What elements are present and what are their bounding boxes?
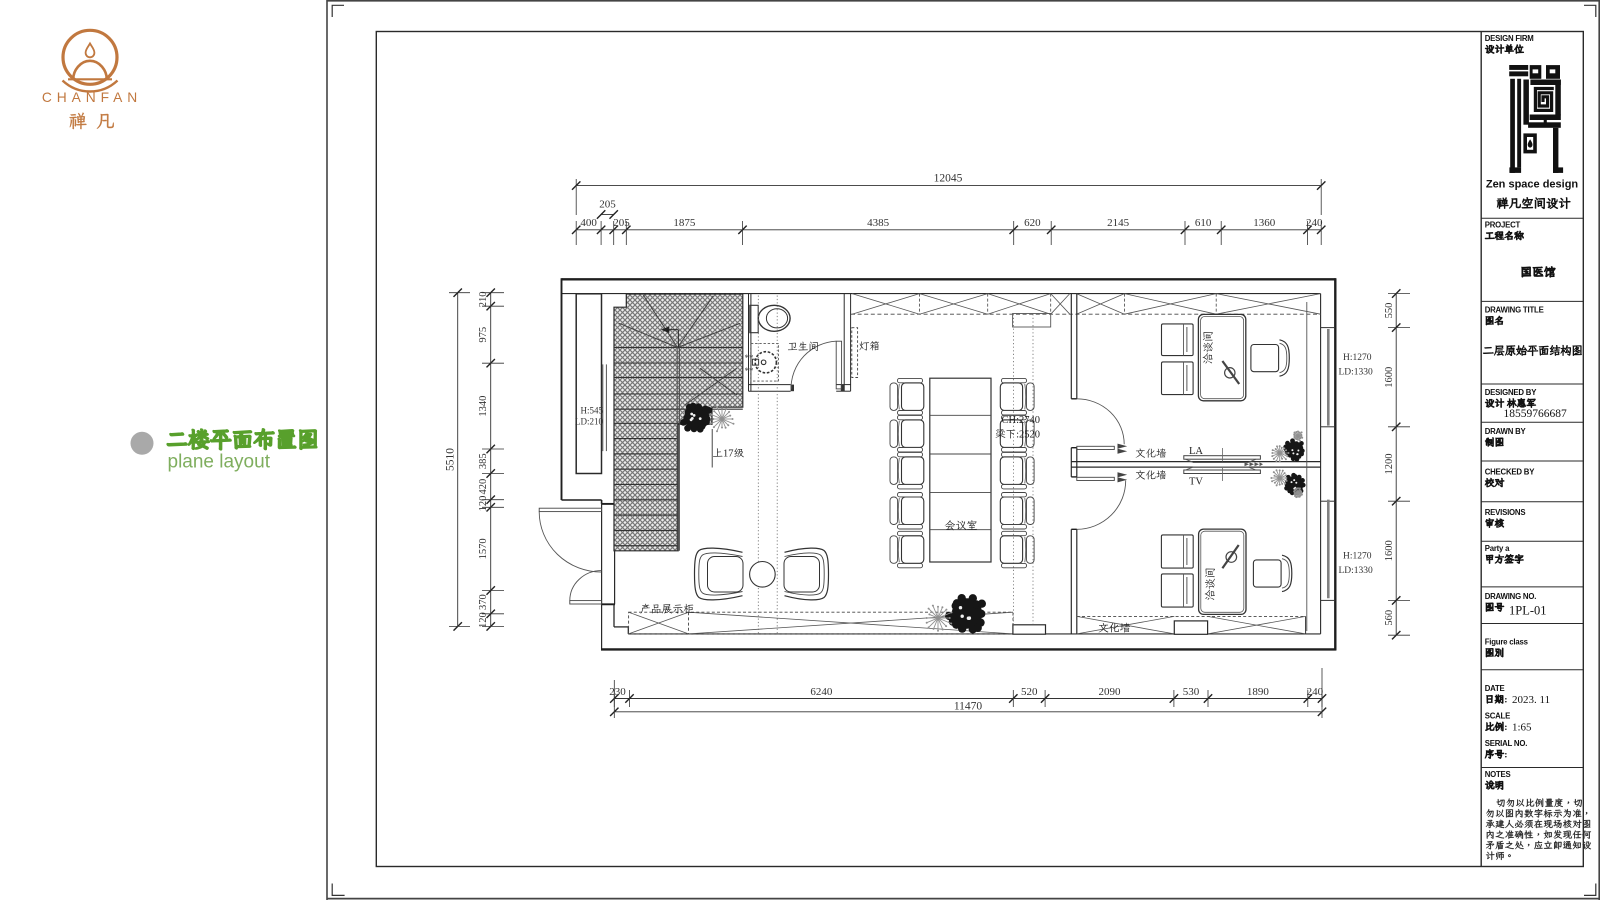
svg-text:1PL-01: 1PL-01	[1509, 604, 1547, 618]
svg-text:**: **	[745, 366, 755, 376]
svg-text:975: 975	[478, 327, 489, 343]
svg-text:120: 120	[478, 612, 489, 628]
svg-text:DRAWING NO.: DRAWING NO.	[1485, 592, 1537, 601]
svg-text:1600: 1600	[1384, 540, 1395, 561]
svg-text:520: 520	[1021, 686, 1038, 698]
svg-text:CHANFAN: CHANFAN	[42, 90, 142, 105]
svg-text:H:1270: H:1270	[1343, 552, 1372, 562]
svg-text:400: 400	[580, 217, 597, 229]
svg-text:1890: 1890	[1247, 686, 1270, 698]
svg-text:205: 205	[599, 199, 616, 211]
svg-text:LD:210: LD:210	[575, 417, 603, 427]
svg-text:240: 240	[1307, 686, 1324, 698]
svg-text:DESIGNED BY: DESIGNED BY	[1485, 388, 1538, 397]
svg-text:SCALE: SCALE	[1485, 712, 1510, 721]
svg-text:CH:2740: CH:2740	[1002, 415, 1041, 426]
svg-text:LA: LA	[1189, 446, 1203, 457]
svg-text:610: 610	[1195, 217, 1212, 229]
svg-text:TV: TV	[1189, 477, 1203, 488]
svg-text:2090: 2090	[1099, 686, 1122, 698]
svg-text::: :	[1504, 722, 1507, 733]
svg-text:550: 550	[1384, 303, 1395, 319]
svg-text:11470: 11470	[954, 701, 983, 713]
svg-text:530: 530	[1183, 686, 1200, 698]
svg-text:18559766687: 18559766687	[1504, 408, 1568, 420]
svg-text:H:1270: H:1270	[1343, 353, 1372, 363]
svg-text:620: 620	[1024, 217, 1041, 229]
svg-text:DRAWING TITLE: DRAWING TITLE	[1485, 306, 1544, 315]
svg-text:CHECKED BY: CHECKED BY	[1485, 468, 1536, 477]
svg-text:LD:1330: LD:1330	[1339, 566, 1374, 576]
svg-text:**: **	[745, 353, 755, 363]
svg-text:DATE: DATE	[1485, 684, 1505, 693]
svg-text:PROJECT: PROJECT	[1485, 221, 1521, 230]
svg-text:Party a: Party a	[1485, 544, 1510, 553]
svg-text:Figure class: Figure class	[1485, 638, 1529, 647]
svg-text:1570: 1570	[478, 538, 489, 559]
svg-text:DESIGN FIRM: DESIGN FIRM	[1485, 34, 1534, 43]
svg-text:5510: 5510	[445, 448, 457, 471]
svg-text:17: 17	[723, 449, 734, 460]
svg-text:1360: 1360	[1253, 217, 1276, 229]
svg-text::: :	[1504, 750, 1507, 761]
svg-text:LD:1330: LD:1330	[1339, 368, 1374, 378]
svg-text:1200: 1200	[1384, 454, 1395, 475]
svg-text:370: 370	[478, 594, 489, 610]
svg-text:420: 420	[478, 479, 489, 495]
svg-text::: :	[1504, 695, 1507, 706]
svg-text:230: 230	[609, 686, 626, 698]
svg-text:560: 560	[1384, 610, 1395, 626]
svg-text:1:65: 1:65	[1512, 722, 1532, 734]
svg-text:plane layout: plane layout	[168, 452, 271, 473]
svg-text:12045: 12045	[934, 173, 963, 185]
svg-text::2520: :2520	[1016, 430, 1040, 441]
svg-text:6240: 6240	[810, 686, 833, 698]
svg-text:1340: 1340	[478, 396, 489, 417]
svg-text:205: 205	[613, 217, 630, 229]
svg-text:385: 385	[478, 453, 489, 469]
svg-text:1600: 1600	[1384, 367, 1395, 388]
svg-text:NOTES: NOTES	[1485, 770, 1511, 779]
svg-text:120: 120	[478, 496, 489, 512]
svg-text:Zen space design: Zen space design	[1486, 179, 1579, 191]
svg-text:REVISIONS: REVISIONS	[1485, 508, 1526, 517]
svg-text:210: 210	[478, 292, 489, 308]
svg-text:2145: 2145	[1107, 217, 1130, 229]
svg-text:4385: 4385	[867, 217, 890, 229]
svg-text:1875: 1875	[673, 217, 696, 229]
svg-text:H:545: H:545	[581, 406, 604, 416]
svg-text:SERIAL NO.: SERIAL NO.	[1485, 739, 1528, 748]
svg-text:240: 240	[1306, 217, 1323, 229]
svg-text:2023. 11: 2023. 11	[1512, 694, 1550, 706]
svg-text:DRAWN BY: DRAWN BY	[1485, 427, 1527, 436]
